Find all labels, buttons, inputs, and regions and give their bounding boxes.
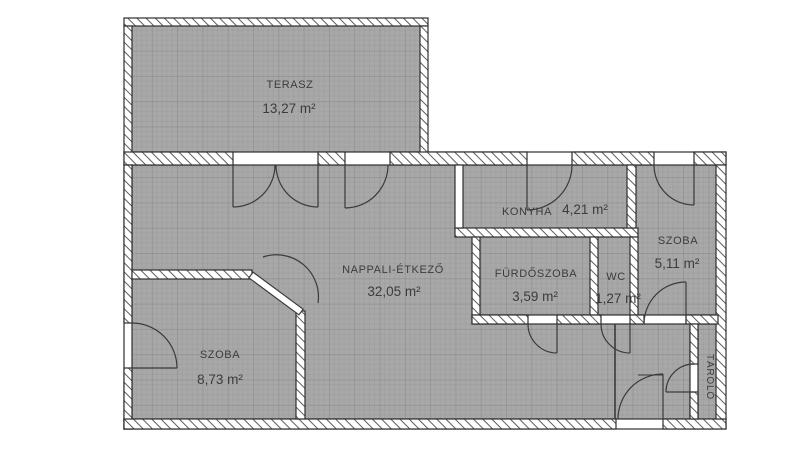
- wall-bottom-seg1: [124, 419, 616, 429]
- room-label-nappali: NAPPALI-ÉTKEZŐ: [342, 262, 444, 276]
- wall-kitchen-bottom: [455, 228, 638, 237]
- room-area-wc: 1,27 m²: [595, 291, 641, 306]
- room-label-terasz: TERASZ: [267, 79, 314, 91]
- floor-plan-canvas: TERASZ 13,27 m² NAPPALI-ÉTKEZŐ 32,05 m² …: [0, 0, 800, 450]
- wall-top-seg2: [318, 152, 345, 165]
- room-label-tarolo: TÁROLÓ: [704, 354, 717, 400]
- room-area-furdoszoba: 3,59 m²: [512, 289, 558, 304]
- room-label-szoba-jobb: SZOBA: [658, 235, 698, 247]
- wall-kitchen-right: [627, 165, 636, 228]
- room-label-furdoszoba: FÜRDŐSZOBA: [495, 266, 577, 280]
- wall-terrace-top: [124, 18, 428, 26]
- wall-bath-bottom-seg4: [686, 315, 718, 324]
- wall-bottom-seg2: [663, 419, 726, 429]
- wall-left-seg1: [124, 165, 132, 323]
- wall-room2-top: [132, 270, 252, 279]
- room-area-nappali: 32,05 m²: [367, 284, 421, 299]
- wall-top-seg5: [694, 152, 726, 165]
- wall-bath-left: [472, 237, 480, 315]
- wall-top-seg1: [124, 152, 233, 165]
- wall-terrace-right: [420, 26, 428, 155]
- wall-terrace-left: [124, 26, 132, 155]
- wall-right: [716, 165, 726, 419]
- wall-storage-seg1: [690, 324, 698, 364]
- wall-kitchen-left: [455, 165, 463, 228]
- wall-room2-right: [296, 311, 305, 419]
- wall-bath-bottom-seg2: [557, 315, 601, 324]
- wall-bath-bottom-seg1: [472, 315, 528, 324]
- room-area-szoba-bal: 8,73 m²: [197, 372, 243, 387]
- floor-plan-svg: TERASZ 13,27 m² NAPPALI-ÉTKEZŐ 32,05 m² …: [0, 0, 800, 450]
- room-area-terasz: 13,27 m²: [262, 101, 316, 116]
- wall-bath-bottom-seg3: [630, 315, 644, 324]
- wall-top-seg3: [390, 152, 527, 165]
- wall-top-seg4: [572, 152, 654, 165]
- room-label-szoba-bal: SZOBA: [200, 349, 240, 361]
- room-area-szoba-jobb: 5,11 m²: [655, 256, 700, 271]
- room-area-konyha: 4,21 m²: [562, 202, 608, 217]
- wall-storage-seg2: [690, 392, 698, 419]
- room-label-wc: WC: [606, 271, 626, 283]
- room-label-konyha: KONYHA: [502, 206, 552, 218]
